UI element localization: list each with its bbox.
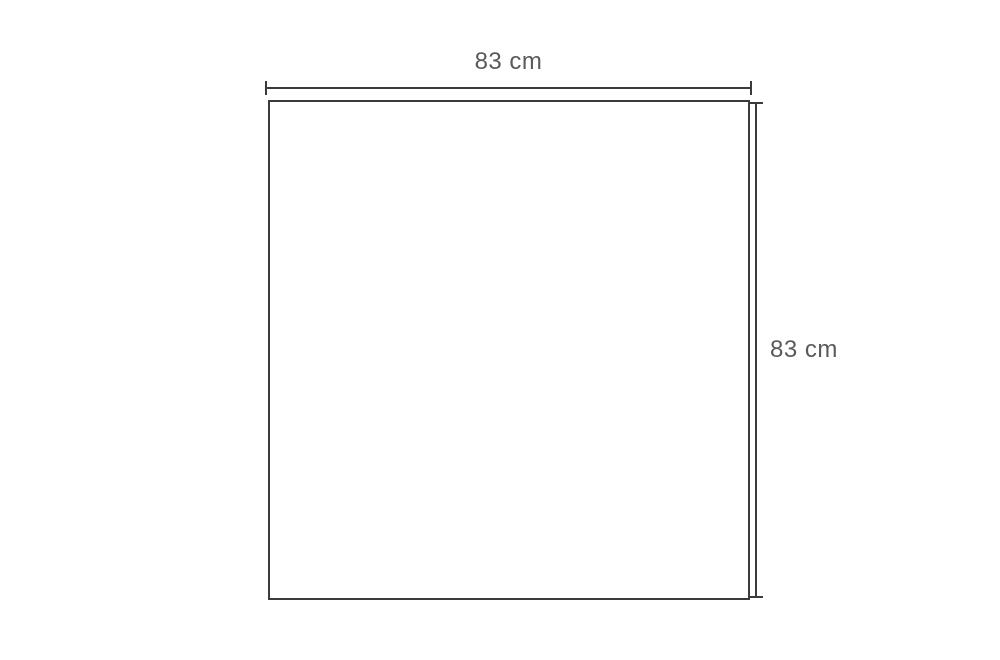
dimension-endcap-left [265,81,267,95]
dimension-diagram: 83 cm 83 cm [0,0,1000,660]
dimension-endcap-right [750,81,752,95]
width-dimension-line [265,87,752,89]
width-dimension-label: 83 cm [265,50,752,74]
dimension-endcap-top [749,102,763,104]
height-dimension-line [755,102,757,598]
height-dimension-label: 83 cm [770,338,838,362]
square-outline [268,100,750,600]
dimension-endcap-bottom [749,596,763,598]
